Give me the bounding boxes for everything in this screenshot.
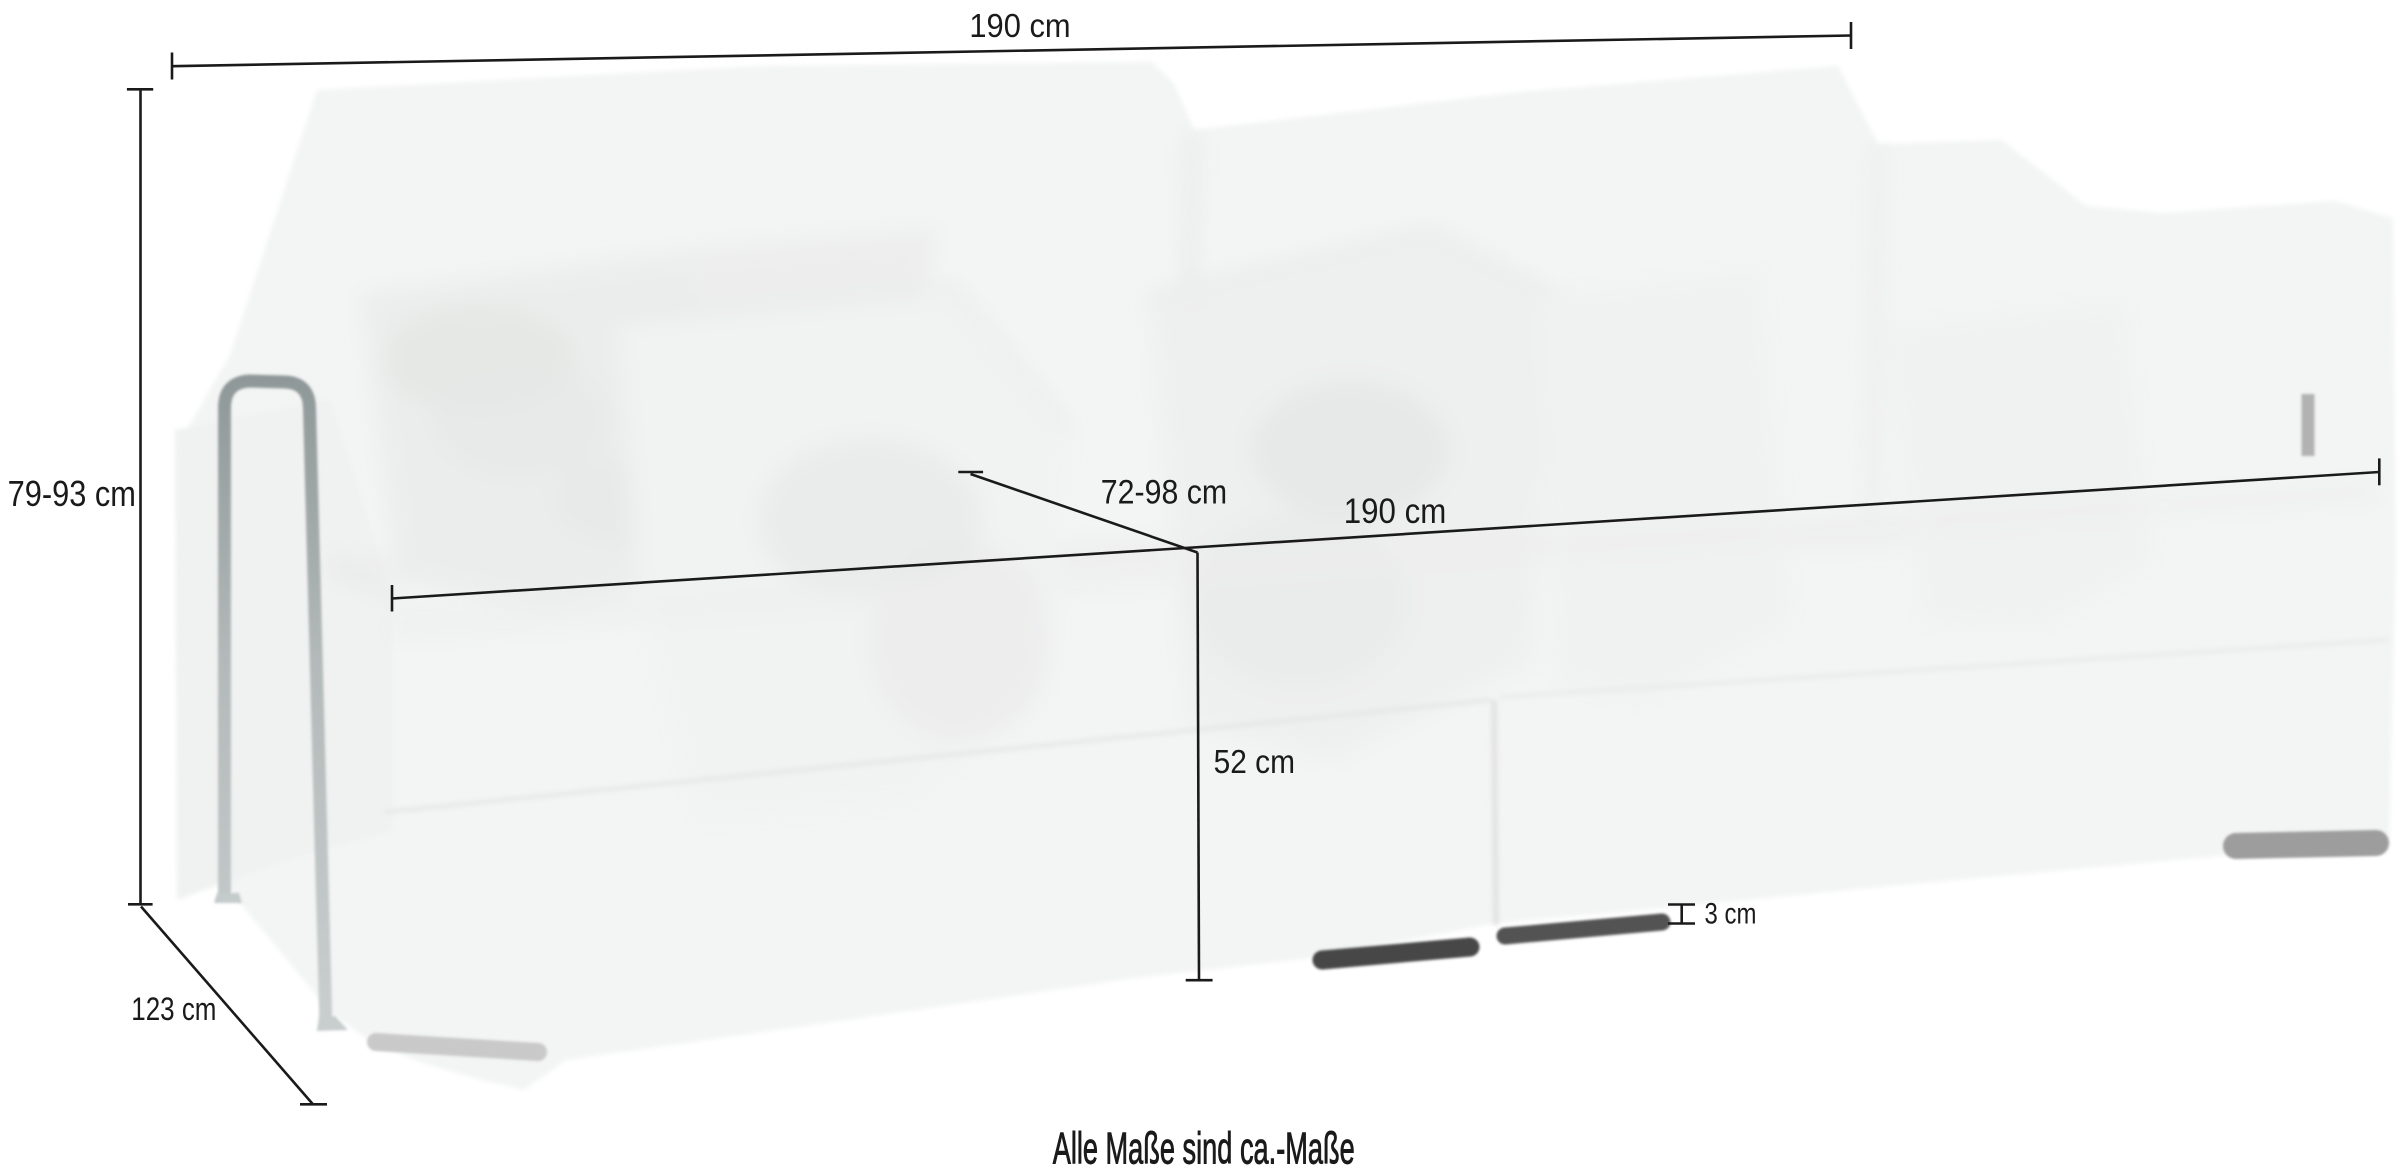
svg-text:123 cm: 123 cm — [131, 991, 216, 1027]
svg-text:190 cm: 190 cm — [1344, 492, 1447, 531]
svg-text:Alle Maße sind ca.-Maße: Alle Maße sind ca.-Maße — [1053, 1124, 1355, 1171]
svg-text:190 cm: 190 cm — [969, 7, 1070, 45]
svg-text:3 cm: 3 cm — [1705, 898, 1757, 931]
svg-text:72-98 cm: 72-98 cm — [1101, 474, 1227, 512]
svg-text:52 cm: 52 cm — [1214, 743, 1295, 780]
svg-text:79-93 cm: 79-93 cm — [8, 473, 136, 514]
